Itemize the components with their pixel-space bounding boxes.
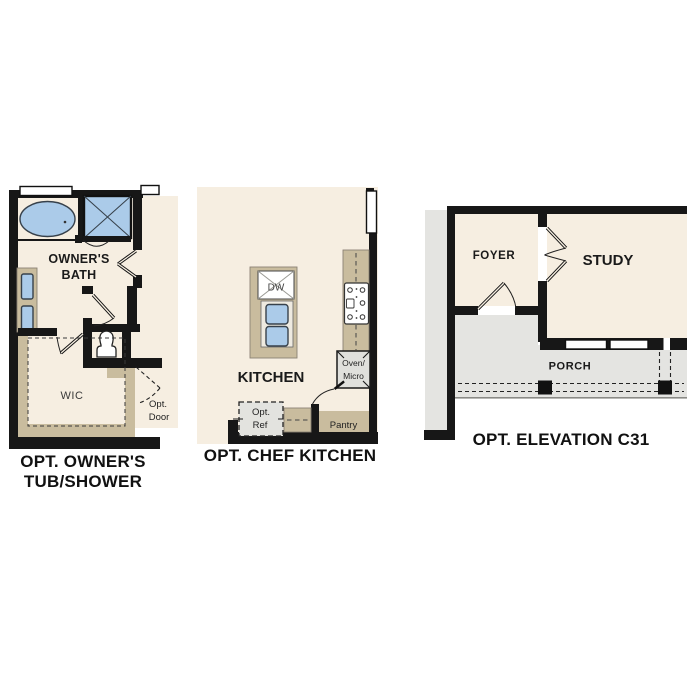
kitchen-island <box>250 267 297 358</box>
double-vanity-icon <box>17 268 37 332</box>
dishwasher-label: DW <box>268 283 285 294</box>
foyer-label: FOYER <box>473 250 516 262</box>
window-icon <box>367 191 377 233</box>
porch-column-icon <box>538 381 552 395</box>
window-icon <box>20 187 72 196</box>
side-strip <box>425 210 447 432</box>
pantry-label: Pantry <box>330 420 358 431</box>
wic-label: WIC <box>61 390 84 402</box>
cooktop-icon <box>345 283 369 324</box>
kitchen-label: KITCHEN <box>238 369 305 386</box>
opt-door-label-line1: Opt. <box>149 399 167 410</box>
oven-label-line2: Micro <box>343 371 364 381</box>
window-icon <box>566 340 607 349</box>
shower-icon <box>75 196 131 246</box>
window-icon <box>610 340 648 349</box>
elevation-c31-caption: OPT. ELEVATION C31 <box>425 430 687 450</box>
porch-column-icon <box>658 381 672 395</box>
chef-kitchen-floorplan: Oven/ Micro DW KITCHEN Opt. Ref <box>197 183 383 448</box>
caption-line2: TUB/SHOWER <box>0 472 166 492</box>
opt-door-label-line2: Door <box>149 412 170 423</box>
double-sink-icon <box>261 301 293 347</box>
ref-label-line1: Opt. <box>252 407 270 418</box>
options-sheet: OWNER'S BATH WIC <box>0 0 687 687</box>
chef-kitchen-caption: OPT. CHEF KITCHEN <box>197 446 383 466</box>
owners-bath-label-line2: BATH <box>62 268 97 282</box>
window-icon <box>141 186 159 195</box>
study-label: STUDY <box>583 252 634 269</box>
ref-label-line2: Ref <box>253 420 268 431</box>
elevation-c31-floorplan: FOYER STUDY PORCH <box>420 183 687 455</box>
oven-label-line1: Oven/ <box>342 358 365 368</box>
porch-label: PORCH <box>549 361 592 373</box>
porch-edge <box>455 397 687 399</box>
owners-bath-label-line1: OWNER'S <box>48 252 109 266</box>
owners-bath-caption: OPT. OWNER'S TUB/SHOWER <box>0 452 166 491</box>
study-floor <box>547 214 687 338</box>
caption-line1: OPT. OWNER'S <box>0 452 166 472</box>
base-cabinet <box>284 408 311 432</box>
owners-bath-floorplan: OWNER'S BATH WIC <box>0 183 180 455</box>
